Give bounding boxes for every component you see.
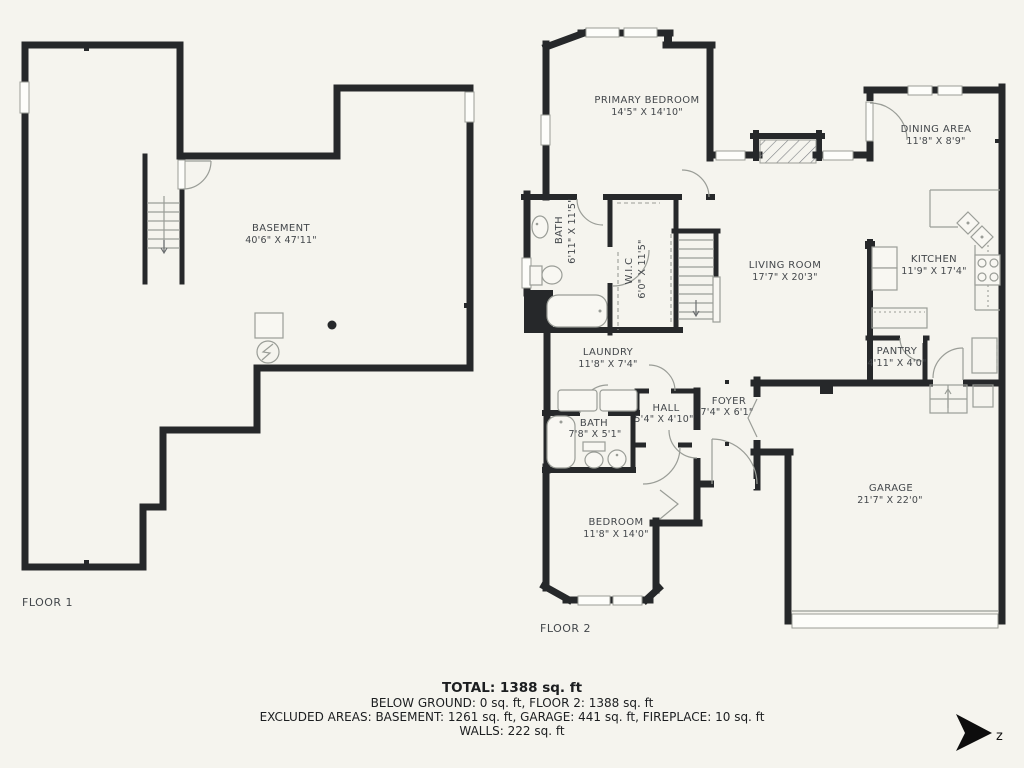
room-dims-primary-bedroom: 14'5" X 14'10"	[611, 107, 683, 118]
stair-railing	[713, 277, 720, 322]
room-dims-kitchen: 11'9" X 17'4"	[901, 266, 966, 277]
room-dims-hall: 5'4" X 4'10"	[634, 414, 693, 425]
room-dims-dining: 11'8" X 8'9"	[906, 136, 965, 147]
window	[908, 86, 932, 95]
room-dims-bath-upper: 6'11" X 11'5"	[567, 198, 578, 263]
basement-window-left	[20, 82, 29, 113]
window	[613, 596, 642, 605]
room-dims-garage: 21'7" X 22'0"	[857, 495, 922, 506]
kitchen-peninsula	[872, 308, 927, 328]
room-label-laundry: LAUNDRY	[583, 347, 634, 358]
window	[823, 151, 853, 160]
window	[624, 28, 657, 37]
room-dims-pantry: 4'11" X 4'0"	[867, 358, 926, 369]
cabinet-icon	[872, 268, 897, 290]
dryer-icon	[600, 390, 637, 411]
fireplace-icon	[760, 140, 816, 163]
entry-steps	[930, 385, 967, 413]
window	[938, 86, 962, 95]
floor2-plan: PRIMARY BEDROOM 14'5" X 14'10" BATH 6'11…	[522, 28, 1002, 628]
stove-icon	[975, 255, 1000, 285]
floor2-stairs	[679, 240, 714, 319]
room-label-kitchen: KITCHEN	[911, 254, 957, 265]
room-dims-basement: 40'6" X 47'11"	[245, 235, 317, 246]
room-label-bath-upper: BATH	[554, 216, 565, 244]
wall-tab	[820, 383, 833, 394]
summary-total: TOTAL: 1388 sq. ft	[442, 680, 583, 696]
bathtub-icon	[547, 416, 575, 468]
window	[586, 28, 619, 37]
dining-door-jamb	[866, 102, 873, 141]
floor1-label: FLOOR 1	[22, 596, 73, 609]
room-dims-laundry: 11'8" X 7'4"	[578, 359, 637, 370]
front-door-arc	[712, 439, 757, 484]
compass: z	[956, 714, 1003, 751]
bathtub-icon	[547, 295, 607, 327]
room-dims-bath-lower: 7'8" X 5'1"	[569, 429, 622, 440]
summary-excluded: EXCLUDED AREAS: BASEMENT: 1261 sq. ft, G…	[260, 710, 765, 724]
sink-icon	[608, 450, 626, 468]
room-label-bedroom: BEDROOM	[589, 517, 644, 528]
compass-letter: z	[996, 729, 1003, 744]
summary-below-ground: BELOW GROUND: 0 sq. ft, FLOOR 2: 1388 sq…	[371, 696, 654, 710]
window	[716, 151, 745, 160]
wall-tick	[84, 560, 89, 565]
room-dims-foyer: 7'4" X 6'1"	[701, 407, 754, 418]
floorplan-drawing: BASEMENT 40'6" X 47'11"	[0, 0, 1024, 768]
room-label-hall: HALL	[652, 403, 679, 414]
room-dims-wic: 6'0" X 11'5"	[637, 239, 648, 298]
room-label-garage: GARAGE	[869, 483, 913, 494]
summary-walls: WALLS: 222 sq. ft	[459, 724, 564, 738]
window	[541, 115, 550, 145]
electrical-panel-icon	[257, 341, 279, 363]
floor2-label: FLOOR 2	[540, 622, 591, 635]
washer-icon	[558, 390, 597, 411]
room-dims-bedroom: 11'8" X 14'0"	[583, 529, 648, 540]
room-label-dining: DINING AREA	[901, 124, 972, 135]
basement-door-jamb	[178, 160, 185, 189]
room-label-bath-lower: BATH	[580, 418, 608, 429]
furnace-icon	[255, 313, 283, 338]
wall-tick	[84, 46, 89, 51]
area-summary: TOTAL: 1388 sq. ft BELOW GROUND: 0 sq. f…	[260, 680, 765, 738]
room-label-foyer: FOYER	[712, 396, 746, 407]
room-dims-living: 17'7" X 20'3"	[752, 272, 817, 283]
refrigerator-icon	[872, 247, 897, 268]
basement-window-right	[465, 92, 474, 122]
room-label-pantry: PANTRY	[877, 346, 918, 357]
garage-door	[792, 614, 998, 628]
window	[578, 596, 610, 605]
basement-stairs	[147, 196, 180, 253]
room-label-living: LIVING ROOM	[749, 260, 821, 271]
room-label-primary-bedroom: PRIMARY BEDROOM	[594, 95, 699, 106]
closet-bifold-icon	[660, 490, 678, 519]
wall-tick	[464, 303, 469, 308]
room-label-wic: W.I.C	[624, 257, 635, 284]
compass-arrow-icon	[956, 714, 992, 751]
floor-drain-icon	[328, 321, 337, 330]
utility-closet	[972, 338, 997, 407]
kitchen-sink-icon	[957, 212, 993, 248]
room-label-basement: BASEMENT	[252, 223, 311, 234]
floorplan-page: BASEMENT 40'6" X 47'11"	[0, 0, 1024, 768]
kitchen-counter	[930, 190, 1000, 310]
floor1-basement-plan: BASEMENT 40'6" X 47'11"	[20, 45, 474, 567]
